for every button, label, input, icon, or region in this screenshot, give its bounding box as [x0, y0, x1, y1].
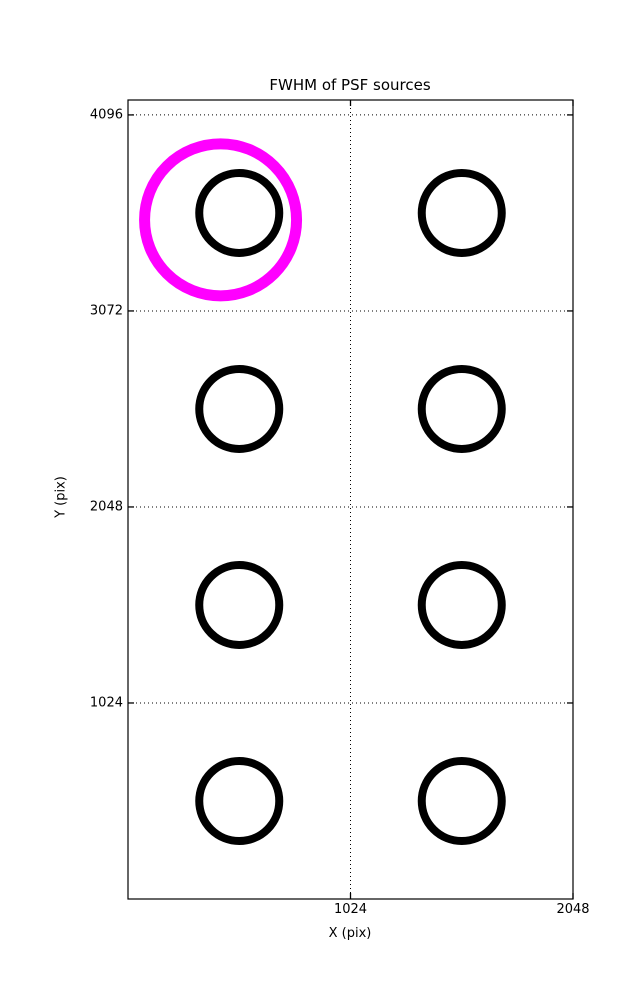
x-axis-label: X (pix) — [329, 926, 372, 941]
psf-source-marker — [422, 761, 502, 841]
x-tick-label: 2048 — [556, 902, 589, 917]
y-tick-label: 4096 — [90, 107, 123, 122]
x-tick-label: 1024 — [334, 902, 367, 917]
axes-box — [128, 100, 573, 899]
psf-source-marker — [199, 173, 279, 253]
psf-source-marker — [199, 761, 279, 841]
y-tick-label: 2048 — [90, 499, 123, 514]
figure-canvas: FWHM of PSF sources X (pix) Y (pix) 1024… — [0, 0, 637, 1000]
psf-source-marker — [422, 369, 502, 449]
psf-source-marker — [422, 173, 502, 253]
psf-source-marker — [422, 565, 502, 645]
psf-source-marker — [199, 565, 279, 645]
y-axis-label: Y (pix) — [54, 476, 69, 518]
highlight-circle — [145, 144, 297, 296]
y-tick-label: 1024 — [90, 695, 123, 710]
psf-source-marker — [199, 369, 279, 449]
y-tick-label: 3072 — [90, 303, 123, 318]
chart-title: FWHM of PSF sources — [269, 76, 430, 94]
